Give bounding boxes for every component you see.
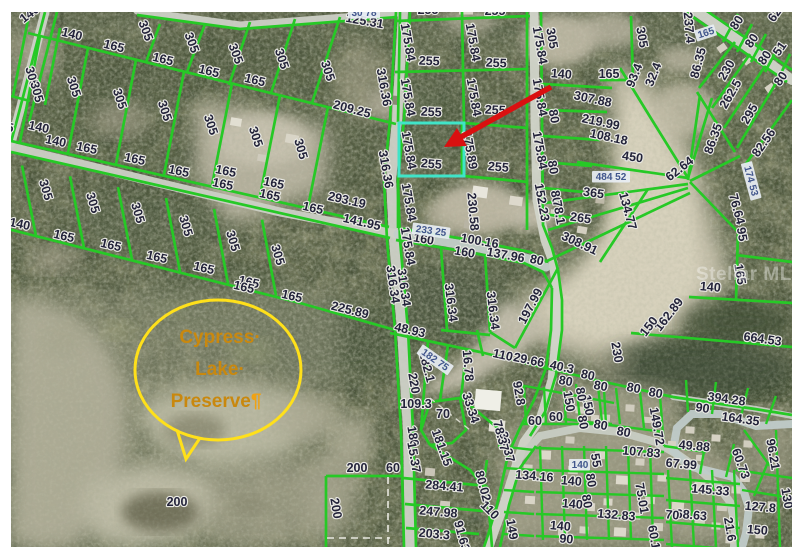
svg-text:80: 80 [558,373,574,389]
svg-text:265: 265 [569,210,592,227]
svg-text:60: 60 [549,410,563,424]
svg-text:140: 140 [549,518,571,534]
svg-text:200: 200 [167,495,188,509]
svg-text:255: 255 [420,104,442,119]
svg-text:484 52: 484 52 [596,172,627,183]
svg-text:80: 80 [546,108,562,124]
svg-text:Cypress·: Cypress· [179,327,260,348]
svg-text:80: 80 [573,386,589,402]
svg-text:80: 80 [579,493,595,509]
svg-text:Lake·: Lake· [195,359,245,380]
svg-text:80: 80 [626,380,642,396]
svg-text:450: 450 [621,149,644,166]
svg-text:255: 255 [487,159,509,175]
svg-text:255: 255 [485,55,507,70]
svg-text:109.3: 109.3 [400,397,431,411]
svg-text:55: 55 [588,452,604,468]
svg-text:16.78: 16.78 [460,349,477,381]
svg-text:49.88: 49.88 [678,438,710,455]
svg-text:200: 200 [347,461,368,475]
svg-text:165: 165 [599,67,620,81]
svg-text:255: 255 [418,53,440,68]
svg-text:203.3: 203.3 [418,526,450,543]
svg-text:90: 90 [695,400,711,416]
svg-text:60: 60 [386,461,400,475]
svg-text:140: 140 [560,473,582,489]
svg-text:Preserve¶: Preserve¶ [171,391,262,412]
svg-text:80: 80 [529,252,546,269]
svg-text:140: 140 [572,460,589,471]
svg-text:67.99: 67.99 [665,456,697,473]
svg-text:90: 90 [559,531,574,546]
svg-text:140: 140 [550,66,572,82]
svg-text:80: 80 [575,414,591,430]
svg-text:95: 95 [734,226,750,242]
svg-text:60: 60 [528,414,542,428]
svg-text:150: 150 [746,522,768,538]
svg-text:80: 80 [545,159,561,175]
svg-text:237.4: 237.4 [681,11,698,43]
svg-text:80: 80 [593,417,609,433]
svg-text:68.63: 68.63 [675,507,707,524]
svg-text:255: 255 [420,156,442,172]
svg-text:Stellar MLS: Stellar MLS [696,264,792,285]
svg-text:70: 70 [665,507,680,522]
svg-text:80: 80 [648,385,664,401]
svg-text:80: 80 [583,472,599,488]
svg-text:70: 70 [436,407,450,421]
svg-text:365: 365 [582,185,605,202]
svg-text:80: 80 [616,424,632,440]
svg-text:80: 80 [593,378,609,394]
svg-text:127.8: 127.8 [744,499,776,516]
